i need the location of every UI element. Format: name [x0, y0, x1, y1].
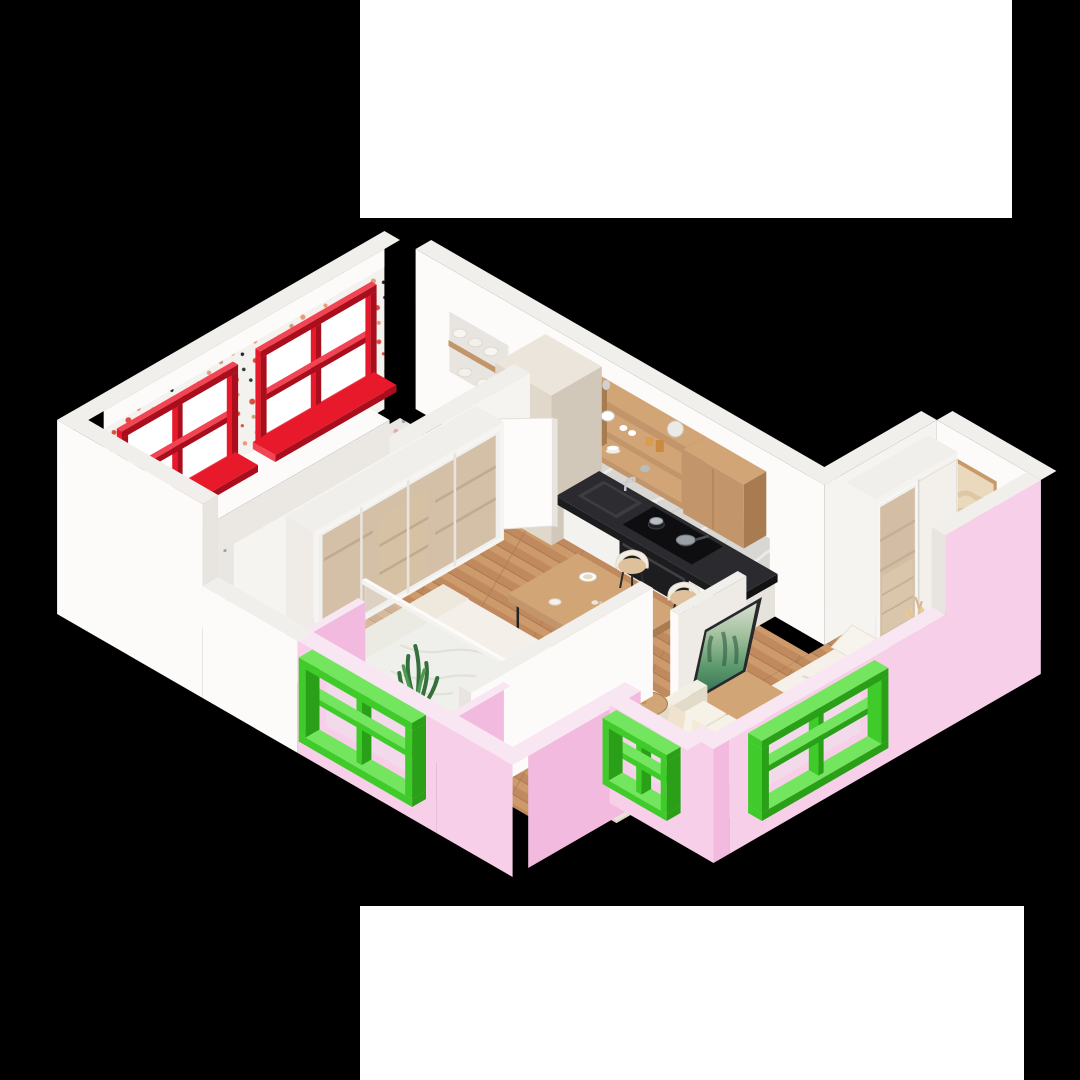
- dish-plate-upright: [667, 421, 683, 437]
- wall-corner-pink-face: [688, 734, 714, 863]
- towel-roll: [468, 338, 482, 347]
- wardrobe2-divider: [918, 479, 920, 622]
- poster-canvas: [0, 0, 1080, 1080]
- wall-corner-pink-side: [714, 740, 730, 863]
- isometric-apartment-render: [0, 0, 1080, 1080]
- towel-roll: [484, 347, 498, 356]
- wall-front-step: [203, 495, 219, 586]
- dish-plate-stack: [607, 446, 619, 450]
- wardrobe1-divider: [454, 453, 457, 568]
- towel-roll: [458, 368, 472, 377]
- towel-roll: [453, 329, 467, 338]
- canvas-white-band-bottom: [360, 906, 1024, 1080]
- wall-gable-step: [932, 527, 946, 615]
- dish-vase: [602, 380, 610, 390]
- bowl: [549, 599, 561, 605]
- dish-cup: [619, 425, 627, 431]
- canvas-white-band-top: [360, 0, 1012, 218]
- dish-bowl: [640, 465, 650, 472]
- cup: [591, 600, 598, 604]
- pot: [650, 518, 663, 525]
- chair-cushion: [618, 558, 646, 574]
- dish-jar: [656, 440, 664, 452]
- bathroom-door-edge: [552, 418, 557, 527]
- dish-jar: [645, 437, 653, 446]
- dish-cup: [628, 430, 636, 436]
- cabinet-door-seam: [712, 469, 714, 530]
- plate-food: [583, 574, 593, 579]
- dish-teapot: [601, 411, 614, 421]
- pan: [676, 535, 695, 545]
- wardrobe1-divider: [407, 480, 410, 595]
